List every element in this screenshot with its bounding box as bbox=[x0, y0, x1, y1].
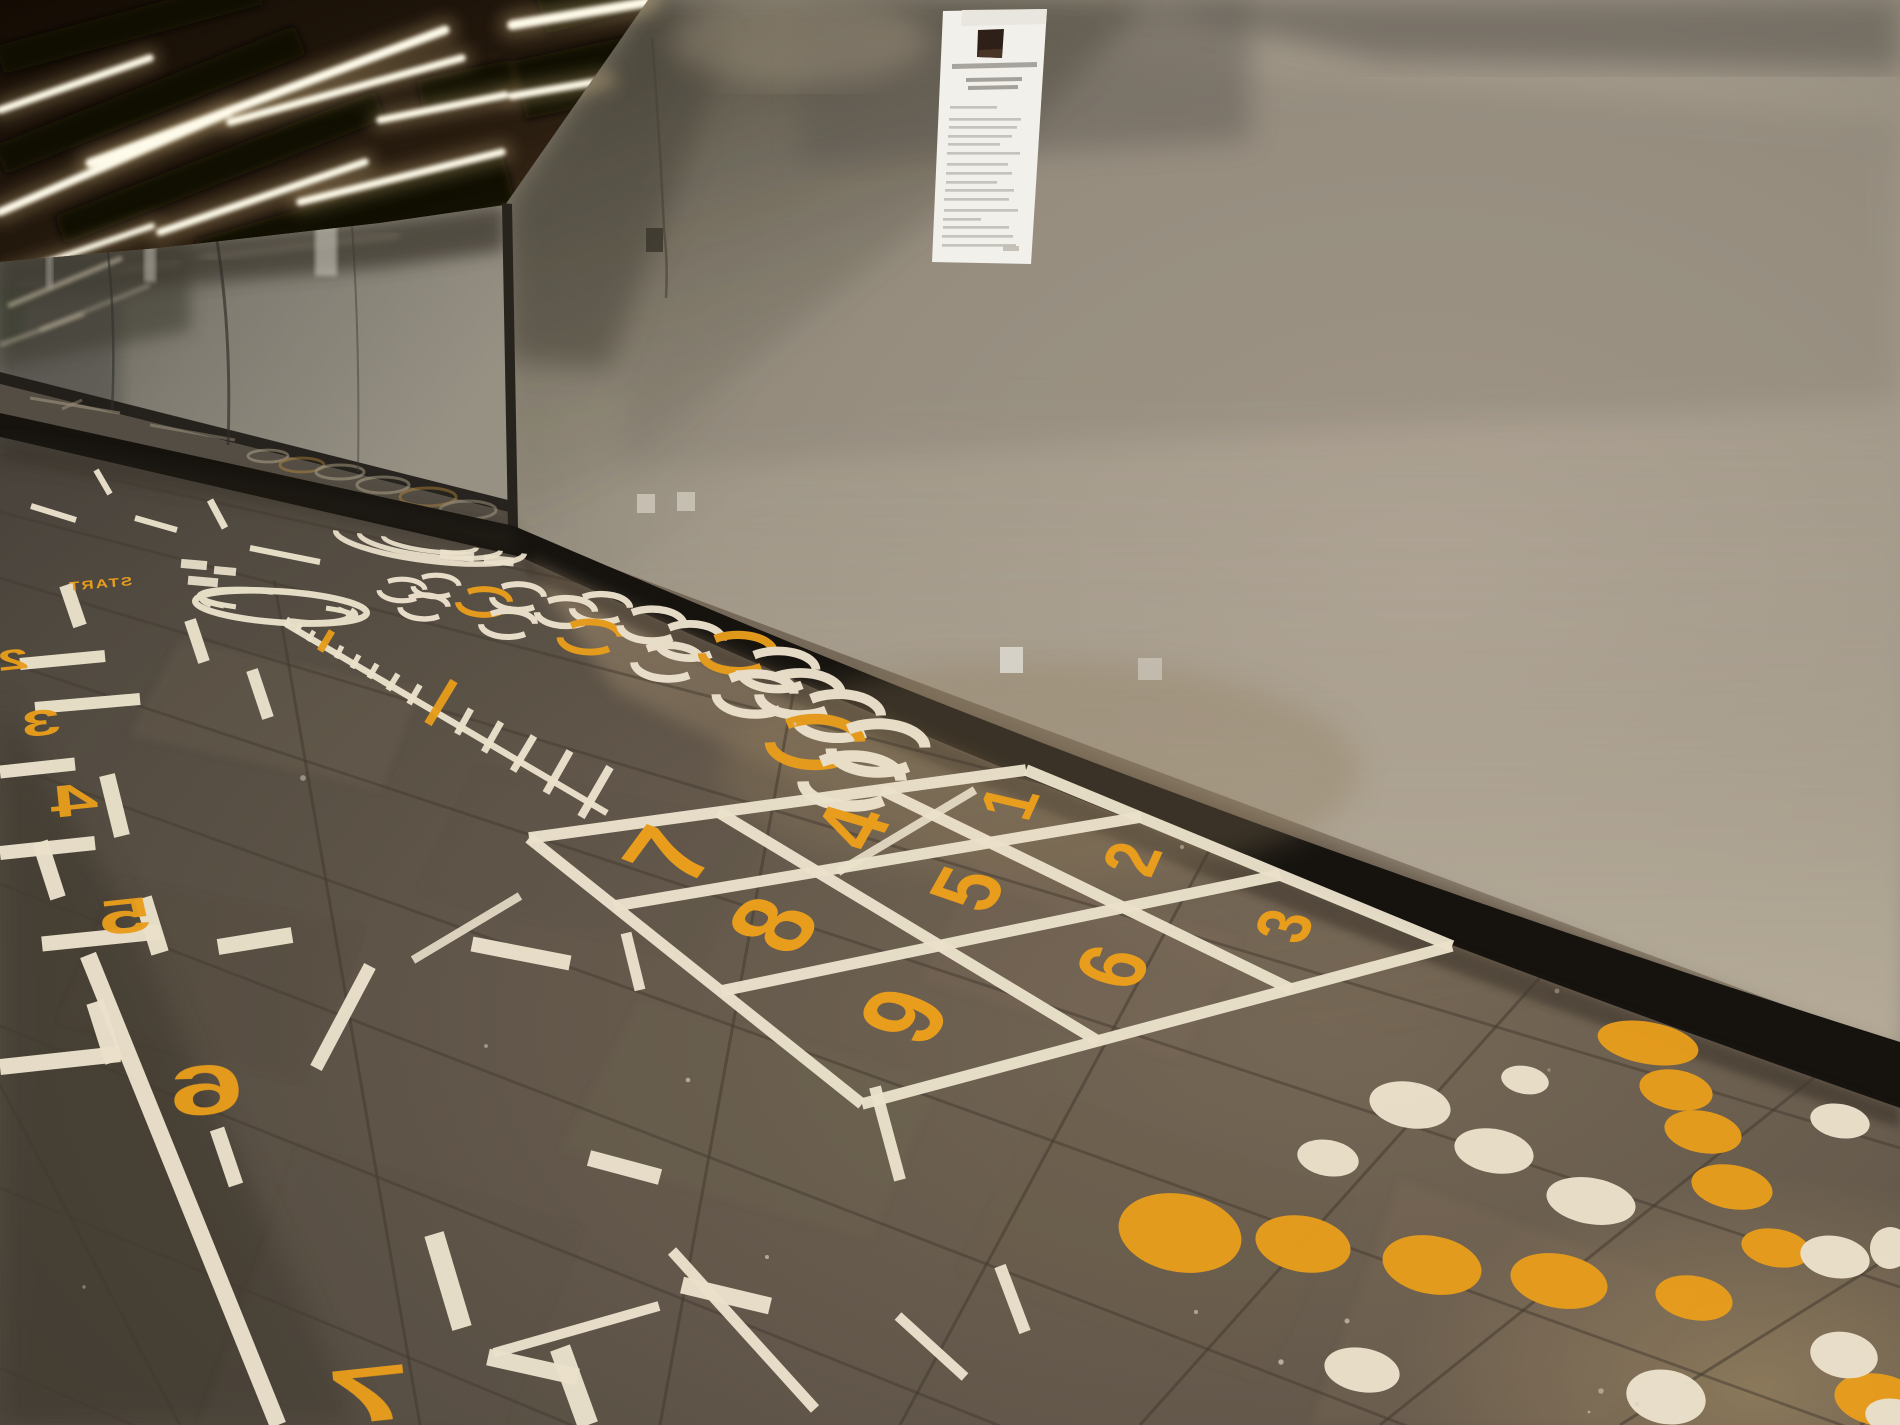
svg-text:5: 5 bbox=[96, 886, 154, 946]
svg-text:4: 4 bbox=[47, 772, 101, 828]
svg-text:6: 6 bbox=[165, 1047, 248, 1133]
svg-text:3: 3 bbox=[20, 701, 63, 745]
svg-text:7: 7 bbox=[324, 1347, 416, 1425]
svg-text:2: 2 bbox=[0, 643, 30, 678]
